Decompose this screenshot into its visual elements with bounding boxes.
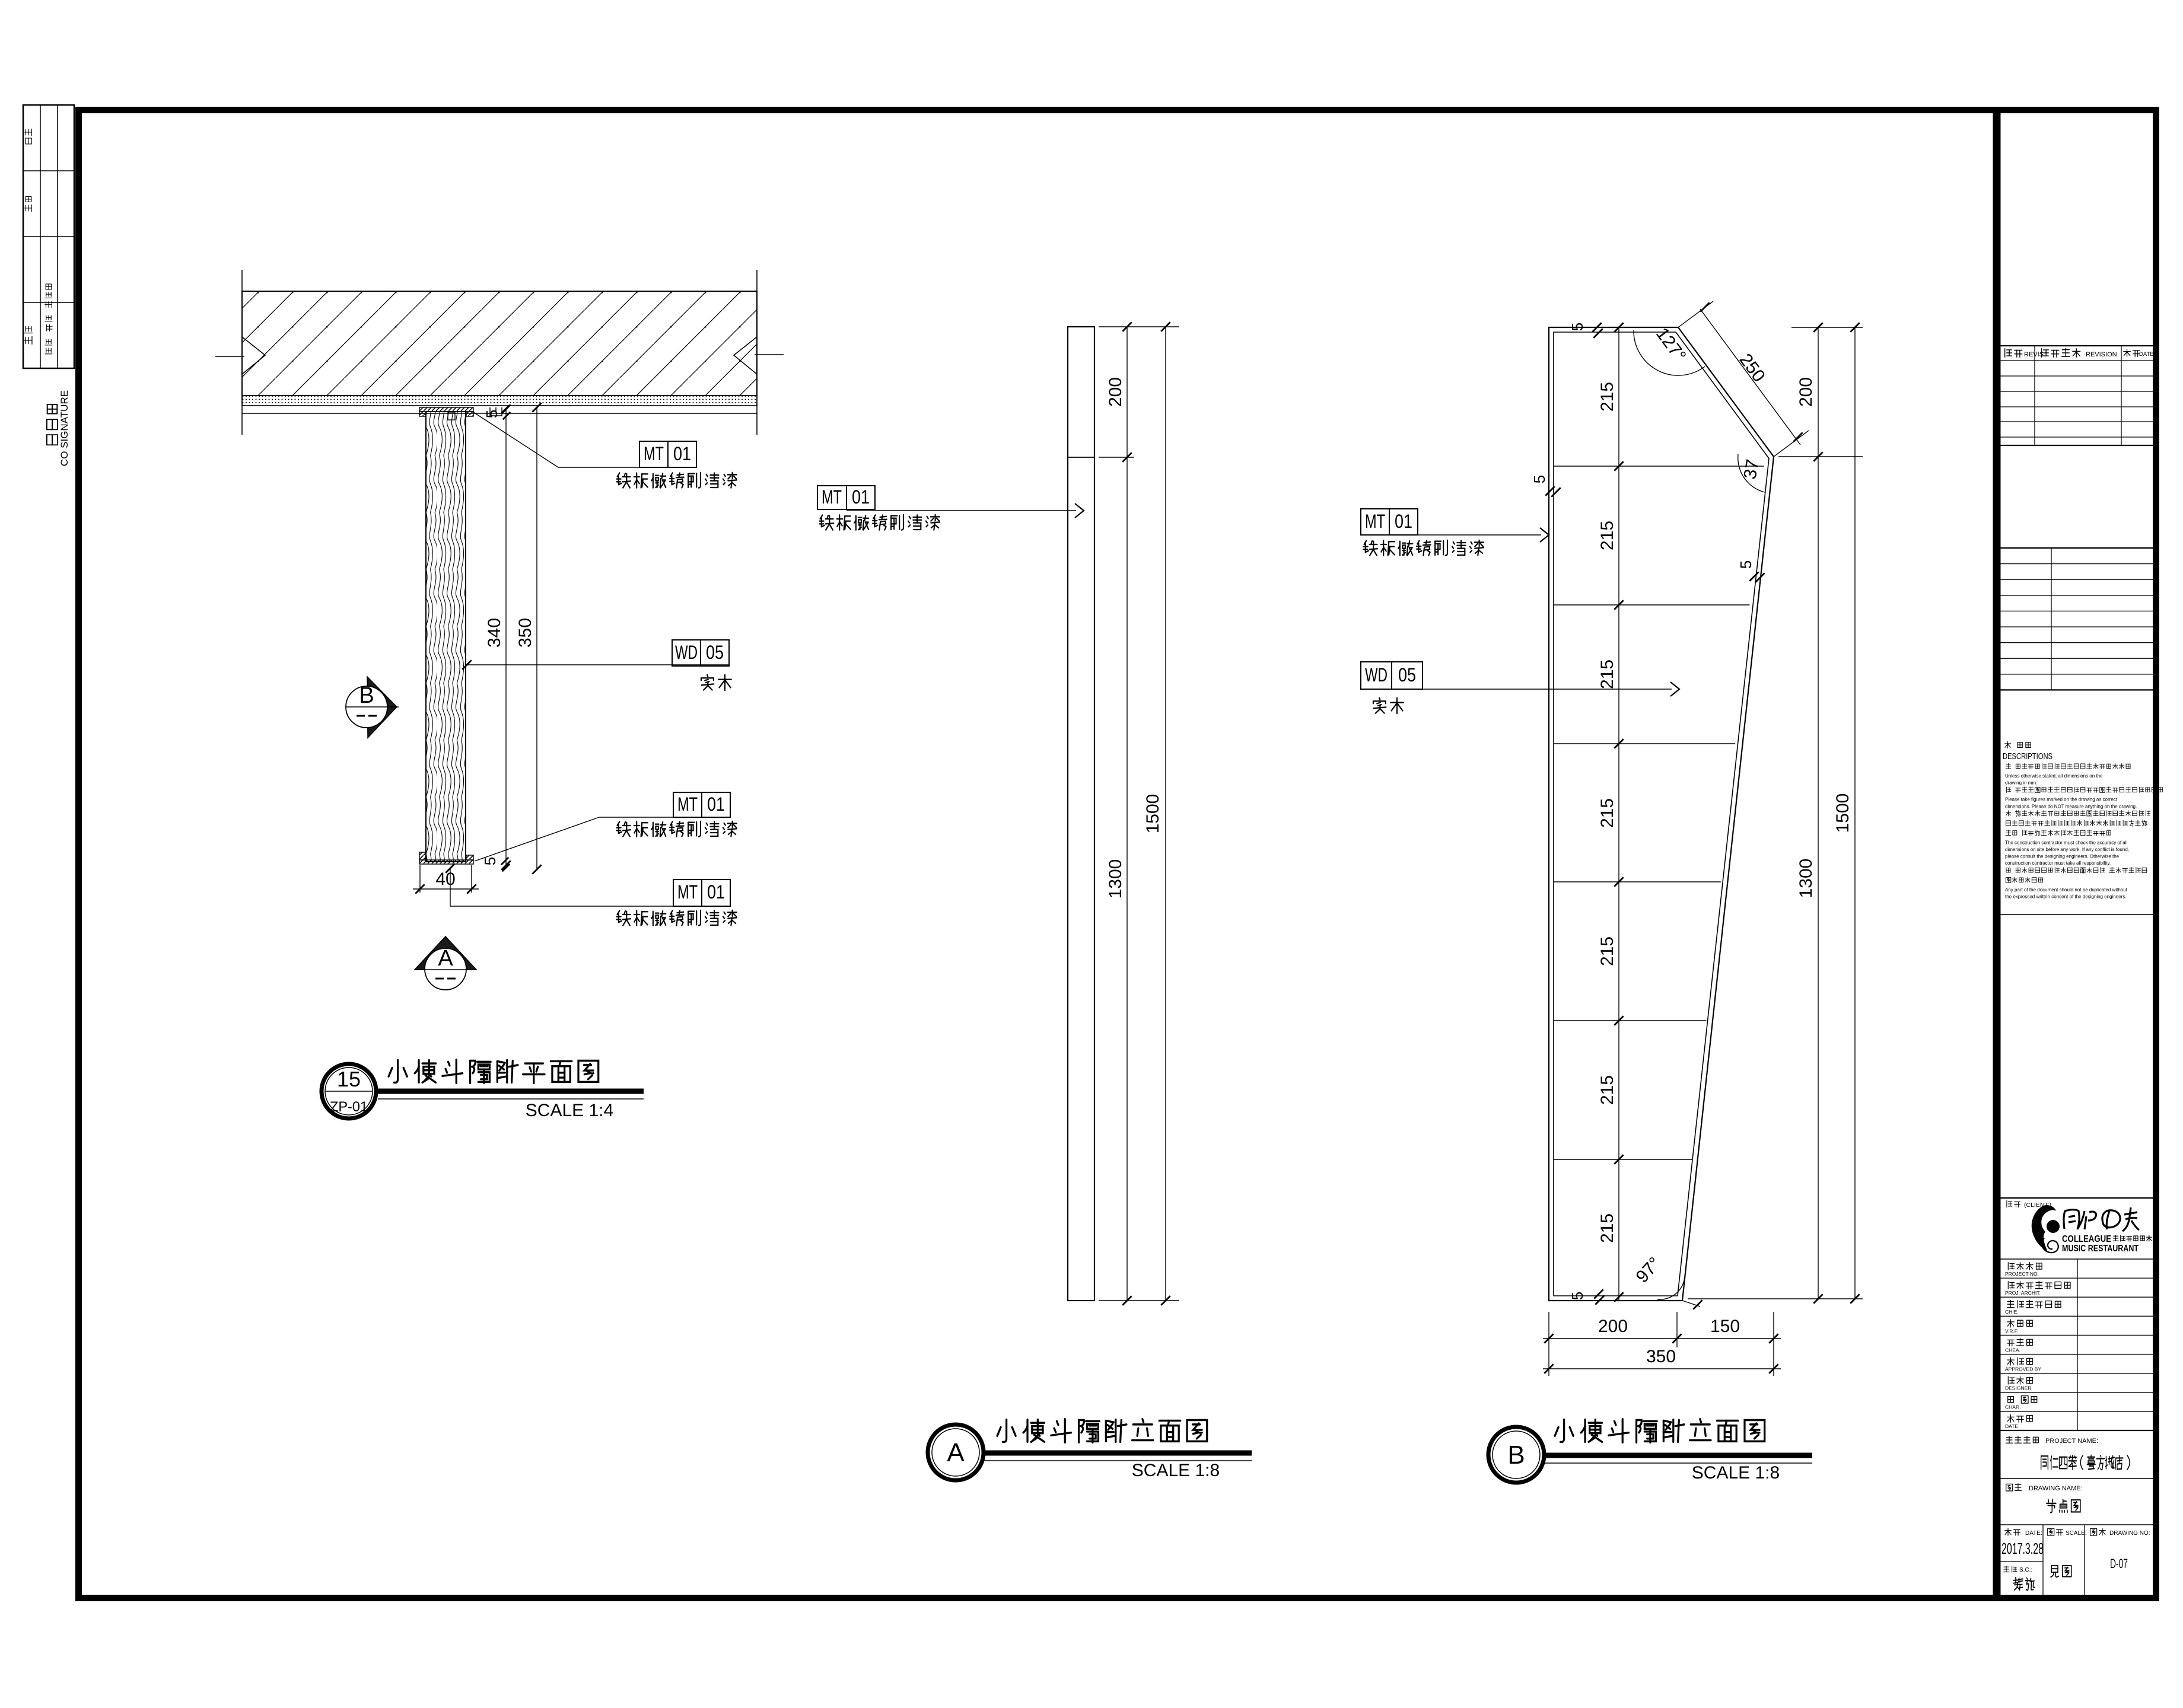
- svg-text:CHIE.: CHIE.: [2005, 1309, 2019, 1315]
- svg-text:1300: 1300: [1106, 859, 1125, 899]
- svg-text:ZP-01: ZP-01: [330, 1099, 368, 1115]
- svg-text:200: 200: [1796, 377, 1816, 407]
- svg-text:5: 5: [1530, 475, 1548, 483]
- svg-text:215: 215: [1598, 521, 1617, 550]
- svg-text:D-07: D-07: [2110, 1556, 2128, 1571]
- svg-text:dimensions. Please do NOT meas: dimensions. Please do NOT measure anythi…: [2005, 804, 2137, 809]
- svg-text:A: A: [947, 1438, 965, 1467]
- svg-text:DRAWING NO:: DRAWING NO:: [2109, 1530, 2150, 1537]
- svg-text:B: B: [1507, 1441, 1525, 1470]
- svg-text:200: 200: [1598, 1317, 1628, 1336]
- svg-text:37: 37: [1740, 458, 1762, 481]
- svg-text:215: 215: [1598, 798, 1617, 828]
- svg-text:COLLEAGUE: COLLEAGUE: [2062, 1234, 2111, 1244]
- svg-text:B: B: [359, 683, 374, 708]
- svg-text:01: 01: [852, 486, 870, 508]
- svg-text:5: 5: [1568, 1292, 1586, 1300]
- svg-text:215: 215: [1598, 382, 1617, 412]
- svg-text:Unless otherwise stated, all d: Unless otherwise stated, all dimensions …: [2005, 773, 2103, 779]
- svg-text:construction contractor must t: construction contractor must take all re…: [2005, 861, 2111, 866]
- svg-text:215: 215: [1598, 1213, 1617, 1243]
- svg-text:WD: WD: [675, 642, 698, 663]
- svg-text:15: 15: [337, 1067, 361, 1091]
- svg-text:01: 01: [707, 794, 725, 815]
- svg-text:S.C.:: S.C.:: [2019, 1567, 2032, 1573]
- svg-text:the expressed written consent: the expressed written consent of the des…: [2005, 894, 2127, 899]
- svg-text:PROJECT NO.: PROJECT NO.: [2005, 1271, 2039, 1277]
- svg-text:REVISION: REVISION: [2086, 351, 2117, 358]
- svg-text:SCALE 1:4: SCALE 1:4: [526, 1101, 613, 1120]
- svg-text:01: 01: [1395, 511, 1412, 532]
- svg-text:Any part of the document shoul: Any part of the document should not be d…: [2005, 887, 2128, 893]
- svg-text:The construction contractor mu: The construction contractor must check t…: [2005, 840, 2128, 845]
- svg-text:2017.3.28: 2017.3.28: [2001, 1540, 2044, 1557]
- svg-text:01: 01: [707, 881, 725, 903]
- svg-text:MT: MT: [677, 881, 698, 903]
- svg-text:SCALE 1:8: SCALE 1:8: [1132, 1461, 1220, 1480]
- svg-text:05: 05: [706, 642, 724, 663]
- svg-text:WD: WD: [1365, 664, 1388, 686]
- svg-text:5: 5: [483, 410, 501, 418]
- svg-text:SCALE:: SCALE:: [2066, 1530, 2087, 1537]
- svg-text:PROJECT NAME:: PROJECT NAME:: [2045, 1438, 2098, 1445]
- svg-text:dimensions on site before any: dimensions on site before any work. If a…: [2005, 847, 2129, 852]
- svg-text:MUSIC RESTAURANT: MUSIC RESTAURANT: [2062, 1244, 2139, 1254]
- svg-text:215: 215: [1598, 936, 1617, 966]
- svg-text:SCALE 1:8: SCALE 1:8: [1692, 1463, 1780, 1483]
- svg-text:DESCRIPTIONS: DESCRIPTIONS: [2003, 751, 2052, 761]
- svg-text:1300: 1300: [1796, 859, 1816, 898]
- svg-text:A: A: [438, 946, 453, 971]
- svg-text:215: 215: [1598, 1075, 1617, 1105]
- svg-text:MT: MT: [822, 486, 842, 508]
- svg-text:PROJ. ARCHIT.: PROJ. ARCHIT.: [2005, 1290, 2041, 1296]
- svg-text:DATE: DATE: [2005, 1423, 2018, 1429]
- svg-text:CO SIGNATURE: CO SIGNATURE: [59, 390, 70, 466]
- svg-text:REVIS.: REVIS.: [2024, 351, 2045, 358]
- svg-text:DESIGNER: DESIGNER: [2005, 1385, 2031, 1391]
- svg-text:MT: MT: [1365, 511, 1385, 532]
- svg-text:215: 215: [1598, 659, 1617, 689]
- svg-text:150: 150: [1710, 1317, 1740, 1336]
- svg-text:APPROVED BY: APPROVED BY: [2005, 1366, 2041, 1372]
- svg-text:V.R.F.: V.R.F.: [2005, 1328, 2018, 1334]
- svg-text:350: 350: [1646, 1347, 1676, 1366]
- svg-text:Please take figures marked on: Please take figures marked on the drawin…: [2005, 797, 2118, 802]
- svg-text:DRAWING NAME:: DRAWING NAME:: [2029, 1485, 2083, 1492]
- svg-text:1500: 1500: [1833, 794, 1853, 833]
- svg-text:DATE:: DATE:: [2025, 1530, 2042, 1537]
- svg-text:01: 01: [673, 443, 691, 464]
- svg-text:1500: 1500: [1143, 794, 1163, 834]
- svg-text:05: 05: [1398, 664, 1416, 686]
- svg-text:350: 350: [515, 618, 535, 648]
- svg-text:CHAR.: CHAR.: [2005, 1404, 2020, 1410]
- svg-text:please consult the designing e: please consult the designing engineers. …: [2005, 854, 2120, 859]
- svg-text:CHEA.: CHEA.: [2005, 1347, 2020, 1353]
- svg-text:drawing in mm.: drawing in mm.: [2005, 780, 2037, 786]
- svg-text:DATE: DATE: [2139, 351, 2154, 358]
- svg-text:5: 5: [1568, 323, 1586, 331]
- svg-text:5: 5: [1737, 560, 1755, 569]
- svg-text:MT: MT: [677, 794, 698, 815]
- svg-text:200: 200: [1106, 377, 1125, 407]
- svg-text:340: 340: [485, 618, 504, 648]
- svg-text:MT: MT: [644, 443, 664, 464]
